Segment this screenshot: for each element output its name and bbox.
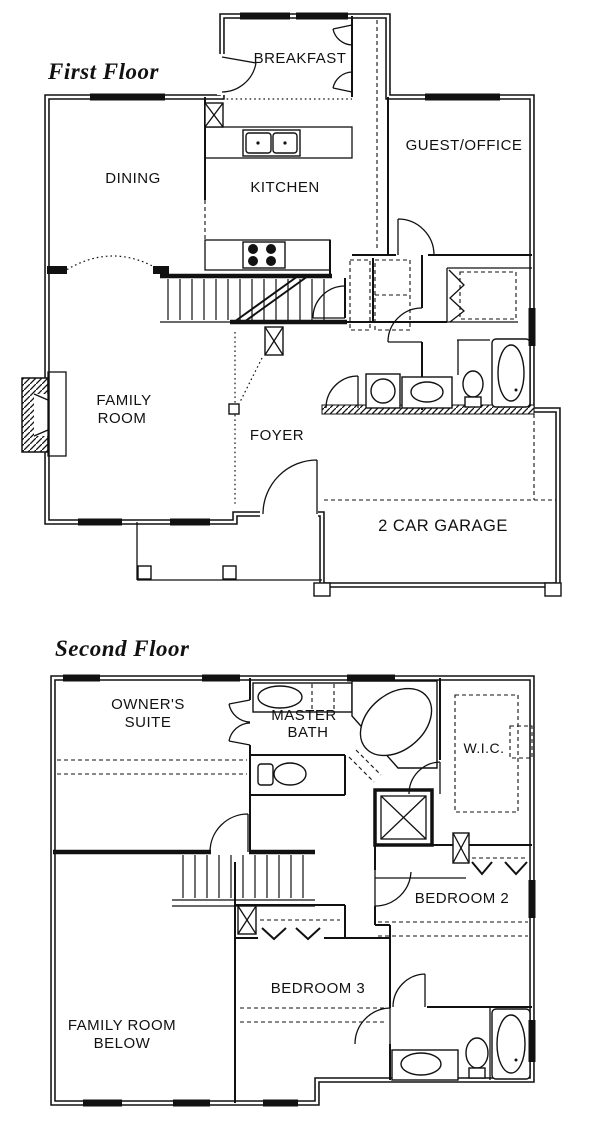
- chase-box: [205, 103, 223, 127]
- room-label-owners-suite-2: SUITE: [125, 714, 172, 731]
- room-label-family-room-below-2: BELOW: [94, 1035, 151, 1052]
- room-label-bedroom2: BEDROOM 2: [415, 890, 510, 907]
- shower: [375, 790, 432, 845]
- hall-bath-toilet: [466, 1038, 488, 1078]
- corner-tub: [347, 675, 444, 769]
- room-label-family-room-2: ROOM: [98, 410, 147, 427]
- hall-closet: [449, 270, 516, 322]
- garage-details: [314, 414, 561, 596]
- room-label-garage: 2 CAR GARAGE: [378, 517, 508, 535]
- cooktop: [243, 242, 285, 268]
- column-marker: [229, 404, 239, 414]
- chase-box: [265, 327, 283, 355]
- second-floor-title: Second Floor: [55, 636, 190, 661]
- stairs-second-floor: [172, 855, 315, 906]
- kitchen-sink: [243, 130, 300, 156]
- room-label-master-bath-1: MASTER: [271, 707, 337, 724]
- porch: [137, 522, 322, 580]
- room-label-master-bath-2: BATH: [288, 724, 329, 741]
- fireplace: [22, 372, 66, 456]
- chase-box: [238, 906, 256, 934]
- room-label-family-room-below-1: FAMILY ROOM: [68, 1017, 176, 1034]
- room-label-bedroom3: BEDROOM 3: [271, 980, 366, 997]
- archway-dashed-arc: [63, 256, 163, 272]
- room-label-owners-suite-1: OWNER'S: [111, 696, 185, 713]
- room-label-dining: DINING: [105, 170, 161, 187]
- room-label-kitchen: KITCHEN: [250, 179, 319, 196]
- master-toilet: [258, 763, 306, 785]
- bathtub: [492, 339, 530, 407]
- hall-bathtub: [492, 1009, 530, 1079]
- room-label-breakfast: BREAKFAST: [254, 50, 347, 67]
- floor-plan-page: First Floor: [0, 0, 600, 1148]
- kitchen-counter: [205, 127, 352, 270]
- room-label-wic: W.I.C.: [463, 740, 504, 756]
- window: [78, 13, 536, 526]
- chase-box: [453, 833, 469, 863]
- hall-bath-vanity: [392, 1050, 458, 1080]
- room-label-family-room-1: FAMILY: [96, 392, 151, 409]
- first-floor-plan: First Floor: [22, 13, 561, 597]
- second-floor-plan: Second Floor: [53, 636, 536, 1107]
- room-label-foyer: FOYER: [250, 427, 304, 444]
- first-floor-title: First Floor: [47, 59, 160, 84]
- washer: [366, 374, 400, 408]
- bath-vanity-sink: [402, 377, 452, 408]
- toilet: [463, 371, 483, 407]
- room-label-guest-office: GUEST/OFFICE: [406, 137, 523, 154]
